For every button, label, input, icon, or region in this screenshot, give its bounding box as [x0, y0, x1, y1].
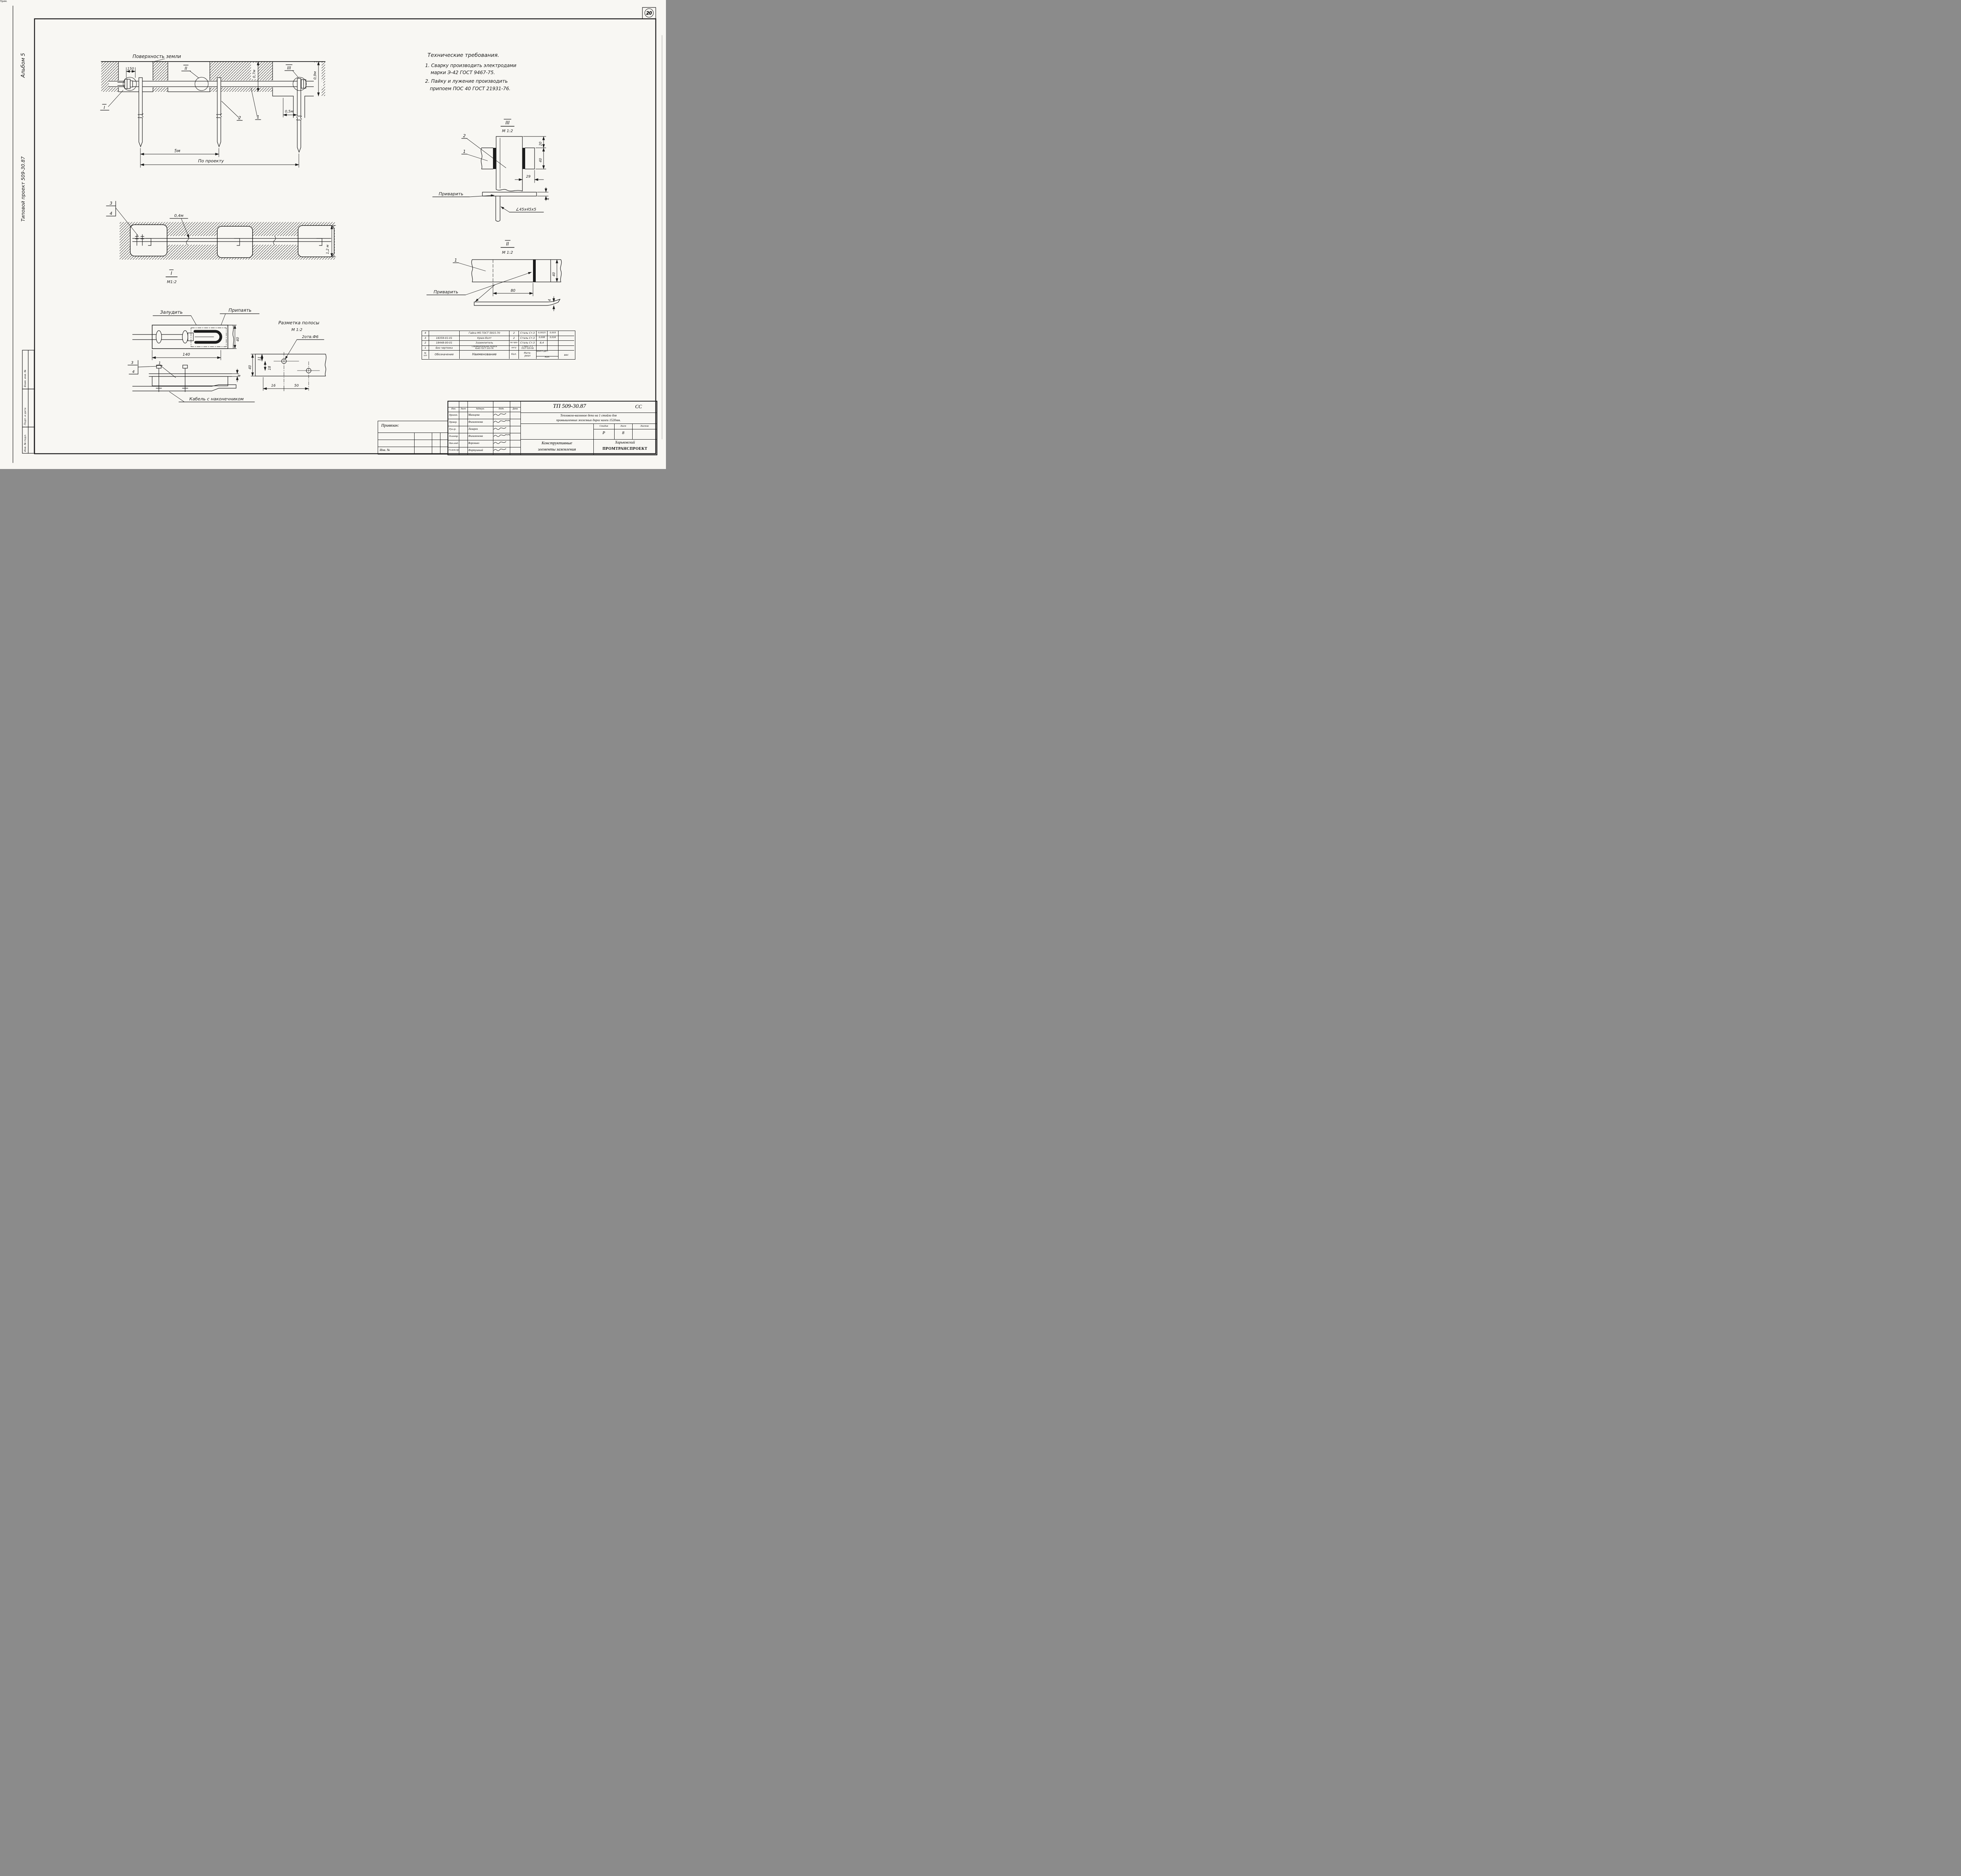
object-desc-line1: Тепловозо-вагонное депо на 1 стойло для	[520, 414, 657, 417]
spec-header-qty: Кол.	[509, 351, 519, 359]
detail-II-label: II	[506, 241, 509, 247]
dim-29: 29	[526, 175, 531, 179]
spec-cell	[558, 336, 574, 341]
callout-2: 2	[238, 115, 241, 120]
col-podp: Подп.	[493, 408, 510, 410]
stamp-podp-data: Подп. и дата	[24, 408, 27, 425]
spec-cell: 2	[509, 331, 519, 336]
view-label-I: I	[171, 271, 172, 276]
name-4: Воронько	[468, 442, 479, 445]
stage-value: Р	[593, 431, 614, 435]
label-cable: Кабель с наконечником	[189, 396, 244, 402]
detail-III-label: III	[506, 120, 510, 125]
callout-detail-II: II	[185, 66, 187, 71]
spec-cell: 18448-00-01	[429, 341, 460, 346]
label-angle: ∠45х45х5	[516, 207, 537, 212]
dim-4: 4	[546, 198, 550, 200]
name-1: Филимонова	[468, 420, 483, 424]
spec-cell: 4	[422, 331, 429, 336]
inv-number-label: Инв. №	[380, 448, 390, 452]
marking-holes: 2отв.Ф6	[302, 335, 318, 339]
marking-title: Разметка полосы	[278, 320, 320, 325]
label-solder: Припаять	[229, 307, 251, 313]
callout-1: 1	[455, 258, 457, 263]
callout-1: 1	[463, 149, 466, 154]
detail-II-scale: М 1:2	[502, 251, 513, 255]
spec-cell: 3	[422, 336, 429, 341]
dim-0-7m: 0,7м	[253, 70, 256, 78]
dim-0-5m: 0,5м	[285, 110, 293, 114]
spec-cell	[429, 331, 460, 336]
col-ndok: №докум.	[468, 408, 493, 410]
view-scale: М1:2	[167, 280, 177, 284]
dim-1-2m: 1,2 м	[326, 245, 330, 254]
dim-11: 11	[258, 356, 262, 361]
spec-cell: 2	[509, 336, 519, 341]
drawing-plan-view	[106, 201, 336, 277]
tech-req-line1: 1. Сварку производить электродами	[425, 63, 517, 68]
page-number: 20	[646, 11, 652, 16]
spec-cell: 0,0015	[537, 331, 548, 336]
marking-scale: М 1:2	[291, 328, 302, 332]
sheet-label: Лист	[614, 425, 632, 427]
callout-detail-III: III	[287, 65, 291, 71]
spec-cell: 18359-01-01	[429, 336, 460, 341]
label-weld: Приварить	[439, 191, 464, 196]
spec-cell: Гайка М5 ГОСТ 5915-70	[460, 331, 509, 336]
specification-table: 4 Гайка М5 ГОСТ 5915-70 2 Сталь Ст.3 0,0…	[422, 331, 575, 360]
callout-4: 4	[110, 211, 113, 216]
dim-4-strip: 4	[238, 374, 242, 377]
role-2: Рук.гр.	[449, 428, 456, 431]
callout-4: 4	[132, 370, 135, 374]
dim-140: 140	[182, 353, 190, 357]
dim-18: 18	[268, 366, 272, 370]
spec-cell: 0,003	[548, 331, 558, 336]
spec-cell	[558, 346, 574, 351]
sheet-value: 8	[614, 431, 632, 435]
sheet-title-line1: Конструктивные	[520, 441, 593, 445]
callout-1: 1	[257, 115, 260, 120]
col-data: Дата	[510, 408, 520, 410]
dim-0-9m: 0,9м	[313, 71, 317, 80]
margin-project-label: Типовой проект 509-30.87	[20, 156, 26, 222]
dim-40-plate: 40	[236, 337, 240, 342]
label-weld: Приварить	[434, 289, 458, 294]
dim-16: 16	[271, 384, 276, 388]
drawing-canvas: 20	[0, 0, 666, 469]
spec-cell: по про-	[509, 341, 519, 346]
callout-3: 3	[131, 361, 133, 365]
sheet-title-line2: элементы заземления	[520, 447, 593, 452]
spec-cell	[537, 346, 548, 351]
dim-50: 50	[294, 384, 299, 388]
spec-cell: Сталь Ст.3 ГОСТ 535-58	[519, 346, 537, 351]
spec-cell: Соединительная полоса 4х40 ГОСТ 103-76	[460, 346, 509, 351]
spec-header-code: Обозначение	[429, 351, 460, 359]
spec-cell	[558, 331, 574, 336]
tech-requirements-title: Технические требования.	[427, 52, 499, 58]
dim-40: 40	[248, 365, 252, 369]
spec-cell: Крюк-болт	[460, 336, 509, 341]
detail-III	[433, 119, 548, 222]
object-desc-line2: промышленных железных дорог колеи 1520мм…	[520, 418, 657, 422]
drawing-solder-detail	[128, 314, 259, 402]
dim-4: 4	[548, 299, 552, 301]
callout-2: 2	[463, 133, 466, 138]
spec-cell	[548, 346, 558, 351]
spec-cell: Заземлитель	[460, 341, 509, 346]
detail-III-scale: М 1:2	[502, 129, 513, 133]
detail-II	[427, 240, 562, 311]
tech-req-line2: марки Э-42 ГОСТ 9467-75.	[431, 70, 495, 75]
dim-40: 40	[552, 272, 556, 276]
label-tin: Залудить	[160, 309, 182, 315]
spec-cell: 0,008	[537, 336, 548, 341]
dim-po-proektu: По проекту	[198, 158, 224, 164]
spec-cell: екту	[509, 346, 519, 351]
org-line2: ПРОМТРАНСПРОЕКТ	[593, 447, 657, 451]
col-izm: Изм.	[448, 408, 459, 410]
spec-cell: 2	[422, 341, 429, 346]
role-0: Проект.	[449, 414, 458, 416]
spec-cell: 8,4	[537, 341, 548, 346]
dim-150: 150	[127, 67, 134, 71]
spec-header-num: № п/п	[422, 351, 429, 359]
stamp-vzam-inv: Взам. инв. №	[24, 370, 27, 387]
spec-cell: 0,016	[548, 336, 558, 341]
dim-20: 20	[539, 142, 543, 146]
callout-3: 3	[110, 201, 113, 206]
spec-cell	[558, 341, 574, 346]
margin-album-label: Альбом 5	[20, 53, 26, 78]
spec-cell: 1	[422, 346, 429, 351]
dim-0-4m: 0,4м	[174, 214, 184, 218]
doc-code: СС	[627, 404, 650, 410]
role-5: Гл.инж.пр.	[449, 449, 459, 451]
org-line1: Харьковский	[593, 441, 657, 445]
spec-header-weight-det: Дет.	[544, 351, 549, 356]
title-block: ТП 509-30.87 СС Изм. Лист №докум. Подп. …	[448, 401, 657, 455]
spec-header-weight-ves: вес	[564, 353, 568, 356]
spec-cell	[548, 341, 558, 346]
name-3: Филимонова	[468, 434, 483, 438]
privyazan-label: Привязан:	[381, 424, 399, 428]
spec-header-weight: span>Дет. Кол.	[537, 351, 558, 359]
callout-1: 1	[158, 361, 161, 365]
label-surface: Поверхность земли	[133, 54, 181, 59]
tech-req-line3: 2. Пайку и лужение производить	[425, 78, 508, 84]
dim-80: 80	[511, 289, 515, 293]
name-0: Мальцева	[468, 413, 480, 416]
spec-name-line2: 4х40 ГОСТ 103-76	[475, 348, 494, 350]
privyazan-box: Привязан: Инв. №	[378, 421, 448, 454]
spec-cell: Сталь Ст.3	[519, 331, 537, 336]
spec-header-num-2: п/п	[424, 355, 427, 357]
name-5: Фортушный	[468, 449, 483, 452]
stamp-inv-podl: Инв. № подл.	[24, 434, 27, 452]
spec-cell: Без чертежа	[429, 346, 460, 351]
dim-40: 40	[539, 158, 543, 162]
tech-req-line4: припоем ПОС 40 ГОСТ 21931-76.	[430, 86, 511, 91]
drawing-strip-marking	[251, 340, 326, 391]
doc-number: ТП 509-30.87	[520, 403, 618, 410]
callout-detail-I: I	[104, 105, 105, 110]
col-list: Лист	[459, 408, 468, 410]
role-1: Провер.	[449, 421, 457, 424]
spec-cell: Сталь Ст.3	[519, 336, 537, 341]
dim-5m: 5м	[174, 148, 180, 153]
role-3: Н.контр.	[449, 435, 458, 438]
name-2: Лазарев	[468, 427, 478, 431]
spec-header-weight-qty: Кол.	[545, 356, 550, 358]
spec-header-material: Мате- риал	[519, 351, 537, 359]
spec-cell: Сталь Ст.3	[519, 341, 537, 346]
role-4: Нач.отд.	[449, 442, 458, 445]
stage-label: Стадия	[593, 425, 614, 427]
spec-header-mat-2: риал	[524, 355, 530, 357]
sheets-label: Листов	[632, 425, 657, 427]
blueprint-sheet: 20	[0, 0, 666, 469]
spec-header-name: Наименование	[460, 351, 509, 359]
spec-mat-line2: ГОСТ 535-58	[521, 348, 533, 350]
